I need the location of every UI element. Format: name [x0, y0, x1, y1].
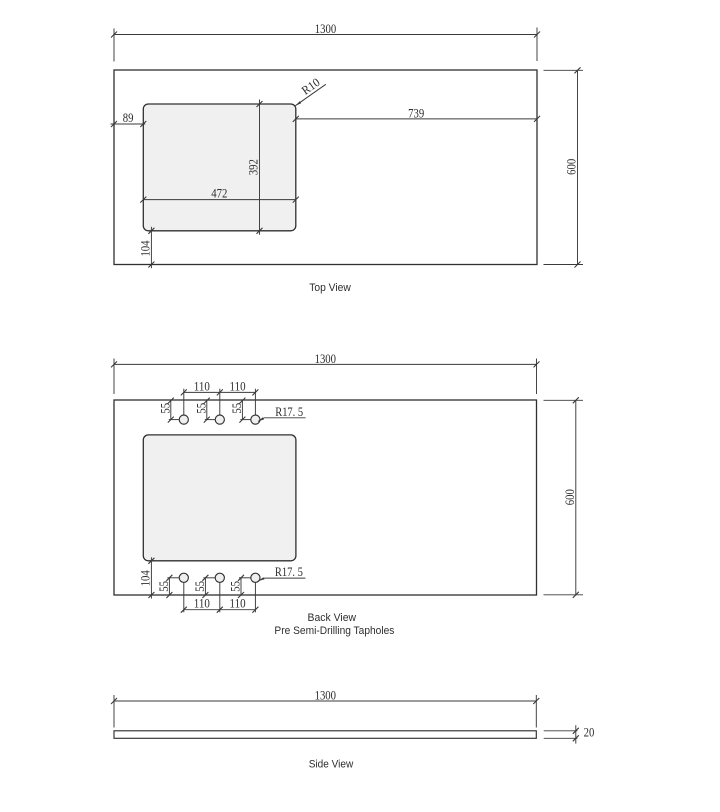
svg-text:55: 55 — [193, 581, 207, 592]
svg-text:55: 55 — [159, 403, 173, 414]
svg-text:1300: 1300 — [315, 22, 336, 36]
svg-text:392: 392 — [247, 159, 261, 175]
svg-text:1300: 1300 — [315, 352, 336, 366]
svg-text:104: 104 — [139, 240, 153, 256]
svg-text:110: 110 — [194, 379, 210, 393]
svg-text:R17. 5: R17. 5 — [275, 565, 303, 579]
svg-text:739: 739 — [408, 106, 424, 120]
svg-text:110: 110 — [194, 597, 210, 611]
svg-text:55: 55 — [157, 581, 171, 592]
svg-text:110: 110 — [230, 597, 246, 611]
svg-text:104: 104 — [139, 570, 153, 586]
svg-text:55: 55 — [195, 403, 209, 414]
svg-text:600: 600 — [565, 159, 579, 175]
svg-text:89: 89 — [123, 111, 134, 125]
svg-text:600: 600 — [563, 489, 577, 505]
svg-text:20: 20 — [584, 725, 595, 739]
svg-text:472: 472 — [211, 187, 227, 201]
svg-text:55: 55 — [229, 581, 243, 592]
svg-text:55: 55 — [230, 403, 244, 414]
svg-text:Pre Semi-Drilling Tapholes: Pre Semi-Drilling Tapholes — [274, 625, 394, 637]
svg-text:R17. 5: R17. 5 — [275, 405, 303, 419]
svg-text:110: 110 — [230, 379, 246, 393]
svg-text:1300: 1300 — [315, 689, 336, 703]
svg-text:Top View: Top View — [309, 282, 351, 294]
svg-text:Back View: Back View — [308, 612, 357, 624]
svg-text:Side View: Side View — [309, 759, 354, 771]
